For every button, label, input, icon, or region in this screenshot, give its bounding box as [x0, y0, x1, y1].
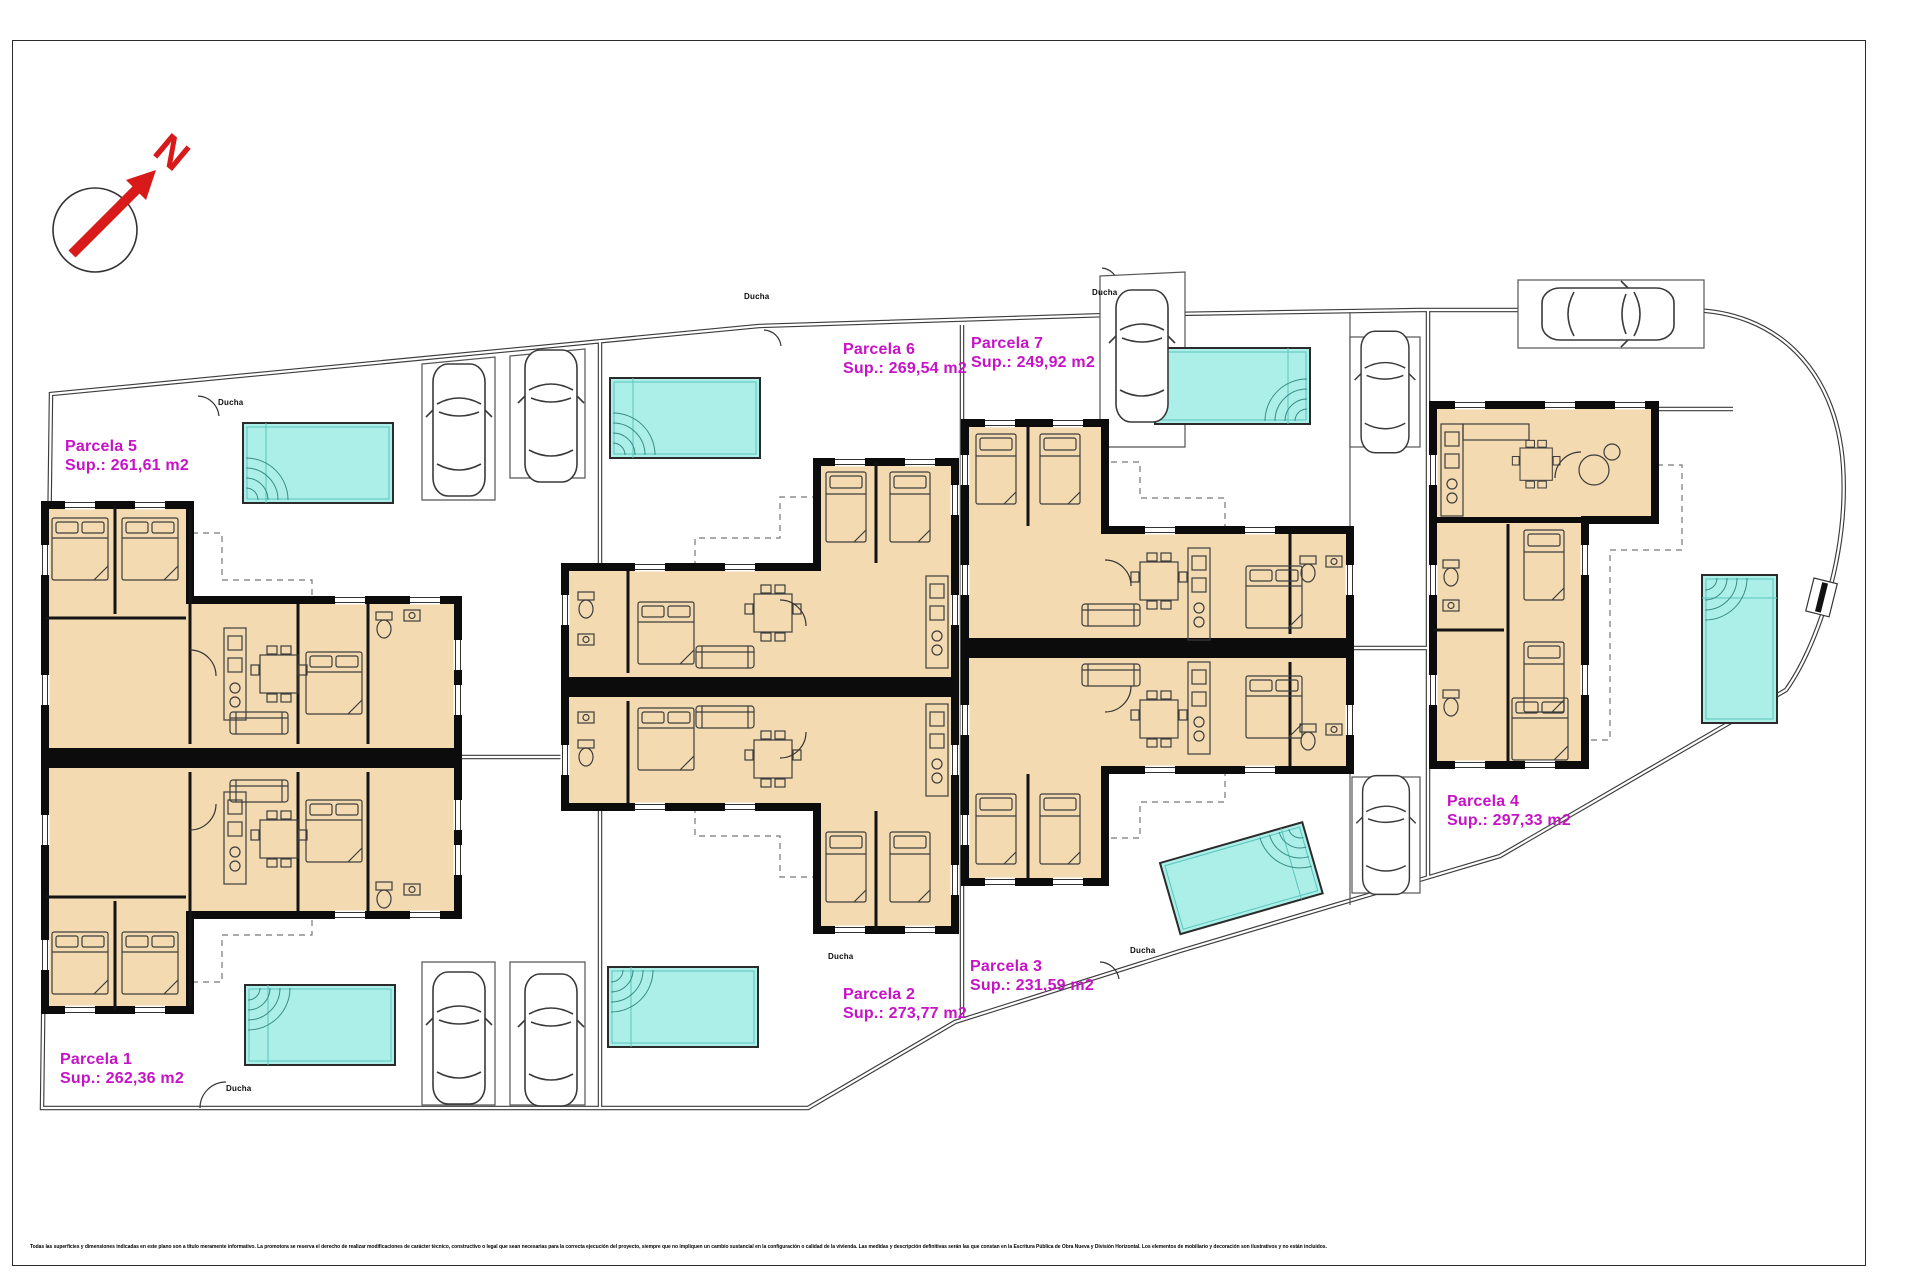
car-icon [518, 350, 584, 482]
pool-parcela-7 [1155, 348, 1310, 424]
building-parcela-4 [1429, 401, 1656, 770]
shower-label: Ducha [1130, 946, 1155, 955]
parcel-area: Sup.: 269,54 m2 [843, 359, 967, 378]
north-compass: N [53, 124, 199, 272]
parcel-label-parcela-5: Parcela 5 Sup.: 261,61 m2 [65, 437, 189, 475]
parcel-name: Parcela 6 [843, 340, 967, 359]
parcel-area: Sup.: 231,59 m2 [970, 976, 1094, 995]
party-wall [45, 748, 458, 768]
car-icon [1109, 290, 1175, 422]
parcel-area: Sup.: 273,77 m2 [843, 1004, 967, 1023]
entrance-gate [1806, 578, 1838, 617]
site-plan-drawing: N [0, 0, 1920, 1280]
car-icon [1542, 281, 1674, 347]
parcel-label-parcela-1: Parcela 1 Sup.: 262,36 m2 [60, 1050, 184, 1088]
disclaimer-text: Todas las superficies y dimensiones indi… [30, 1244, 1327, 1250]
car-icon [426, 364, 492, 496]
parcel-name: Parcela 7 [971, 334, 1095, 353]
shower-label: Ducha [744, 292, 769, 301]
pool-parcela-1 [245, 985, 395, 1065]
shower-label: Ducha [226, 1084, 251, 1093]
building-parcelas-5-1 [41, 501, 463, 1015]
car-icon [1355, 331, 1416, 452]
pool-parcela-4 [1702, 575, 1777, 723]
parcel-area: Sup.: 249,92 m2 [971, 353, 1095, 372]
shower-label: Ducha [1092, 288, 1117, 297]
parcel-name: Parcela 5 [65, 437, 189, 456]
parcel-name: Parcela 2 [843, 985, 967, 1004]
parcel-label-parcela-4: Parcela 4 Sup.: 297,33 m2 [1447, 792, 1571, 830]
parcel-area: Sup.: 262,36 m2 [60, 1069, 184, 1088]
party-wall [565, 677, 955, 697]
shower-label: Ducha [218, 398, 243, 407]
pool-parcela-6 [610, 378, 760, 458]
site-plan-page: N Parcela 5 Sup.: 261,61 m2 Parcela 6 Su… [0, 0, 1920, 1280]
building-parcelas-7-3 [961, 419, 1355, 887]
parcel-area: Sup.: 261,61 m2 [65, 456, 189, 475]
parcel-name: Parcela 4 [1447, 792, 1571, 811]
building-parcelas-6-2 [561, 458, 960, 935]
parcel-name: Parcela 1 [60, 1050, 184, 1069]
parcel-name: Parcela 3 [970, 957, 1094, 976]
party-wall [965, 638, 1350, 658]
parcel-label-parcela-3: Parcela 3 Sup.: 231,59 m2 [970, 957, 1094, 995]
pool-parcela-2 [608, 967, 758, 1047]
car-icon [426, 972, 492, 1104]
parcel-label-parcela-7: Parcela 7 Sup.: 249,92 m2 [971, 334, 1095, 372]
shower-label: Ducha [828, 952, 853, 961]
pool-parcela-5 [243, 423, 393, 503]
parcel-label-parcela-2: Parcela 2 Sup.: 273,77 m2 [843, 985, 967, 1023]
parcel-label-parcela-6: Parcela 6 Sup.: 269,54 m2 [843, 340, 967, 378]
parcel-area: Sup.: 297,33 m2 [1447, 811, 1571, 830]
car-icon [518, 974, 584, 1106]
car-icon [1356, 776, 1415, 895]
